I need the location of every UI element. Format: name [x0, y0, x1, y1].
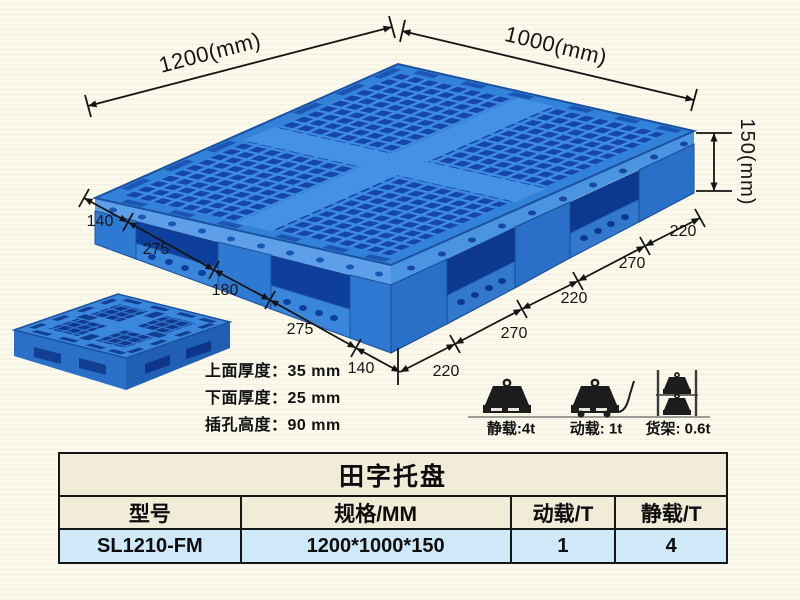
cell-model: SL1210-FM: [59, 529, 241, 563]
cell-size: 1200*1000*150: [241, 529, 511, 563]
col-header-static-load: 静载/T: [615, 496, 727, 529]
right-chain-label-4: 220: [670, 224, 697, 240]
spec-table-title: 田字托盘: [59, 453, 727, 496]
cell-dynamic-load: 1: [511, 529, 616, 563]
pallet-product-sheet: 1200(mm) 1000(mm) 150(mm) 140 275 180 27…: [0, 0, 800, 600]
main-pallet-illustration: [95, 64, 694, 353]
dynamic-load-label: 动载: 1t: [570, 422, 623, 437]
rack-load-label: 货架: 0.6t: [645, 422, 710, 437]
dimension-label-150: 150(mm): [737, 118, 757, 205]
left-chain-label-2: 180: [212, 283, 239, 299]
right-chain-label-3: 270: [619, 256, 646, 272]
load-rating-icons: [468, 370, 710, 418]
spec-table-data-row: SL1210-FM 1200*1000*150 1 4: [59, 529, 727, 563]
thickness-notes: 上面厚度：35 mm 下面厚度：25 mm 插孔高度：90 mm: [205, 358, 341, 439]
pallet-underside-illustration: [14, 294, 230, 390]
static-load-icon: [483, 380, 531, 413]
left-chain-label-4: 140: [348, 361, 375, 377]
spec-table-title-row: 田字托盘: [59, 453, 727, 496]
right-chain-label-2: 220: [561, 291, 588, 307]
dynamic-load-icon: [571, 380, 634, 418]
right-chain-label-0: 220: [433, 364, 460, 380]
left-chain-label-1: 275: [143, 242, 170, 258]
col-header-dynamic-load: 动载/T: [511, 496, 616, 529]
rack-load-icon: [656, 370, 698, 416]
cell-static-load: 4: [615, 529, 727, 563]
col-header-size: 规格/MM: [241, 496, 511, 529]
left-chain-label-3: 275: [287, 322, 314, 338]
static-load-label: 静载:4t: [487, 422, 535, 437]
note-bottom-thickness: 下面厚度：25 mm: [205, 385, 341, 412]
spec-table-header-row: 型号 规格/MM 动载/T 静载/T: [59, 496, 727, 529]
dimension-line-150: [696, 133, 732, 191]
spec-table: 田字托盘 型号 规格/MM 动载/T 静载/T SL1210-FM 1200*1…: [58, 452, 728, 564]
note-fork-opening-height: 插孔高度：90 mm: [205, 412, 341, 439]
col-header-model: 型号: [59, 496, 241, 529]
right-chain-label-1: 270: [501, 326, 528, 342]
left-chain-label-0: 140: [87, 214, 114, 230]
note-top-thickness: 上面厚度：35 mm: [205, 358, 341, 385]
